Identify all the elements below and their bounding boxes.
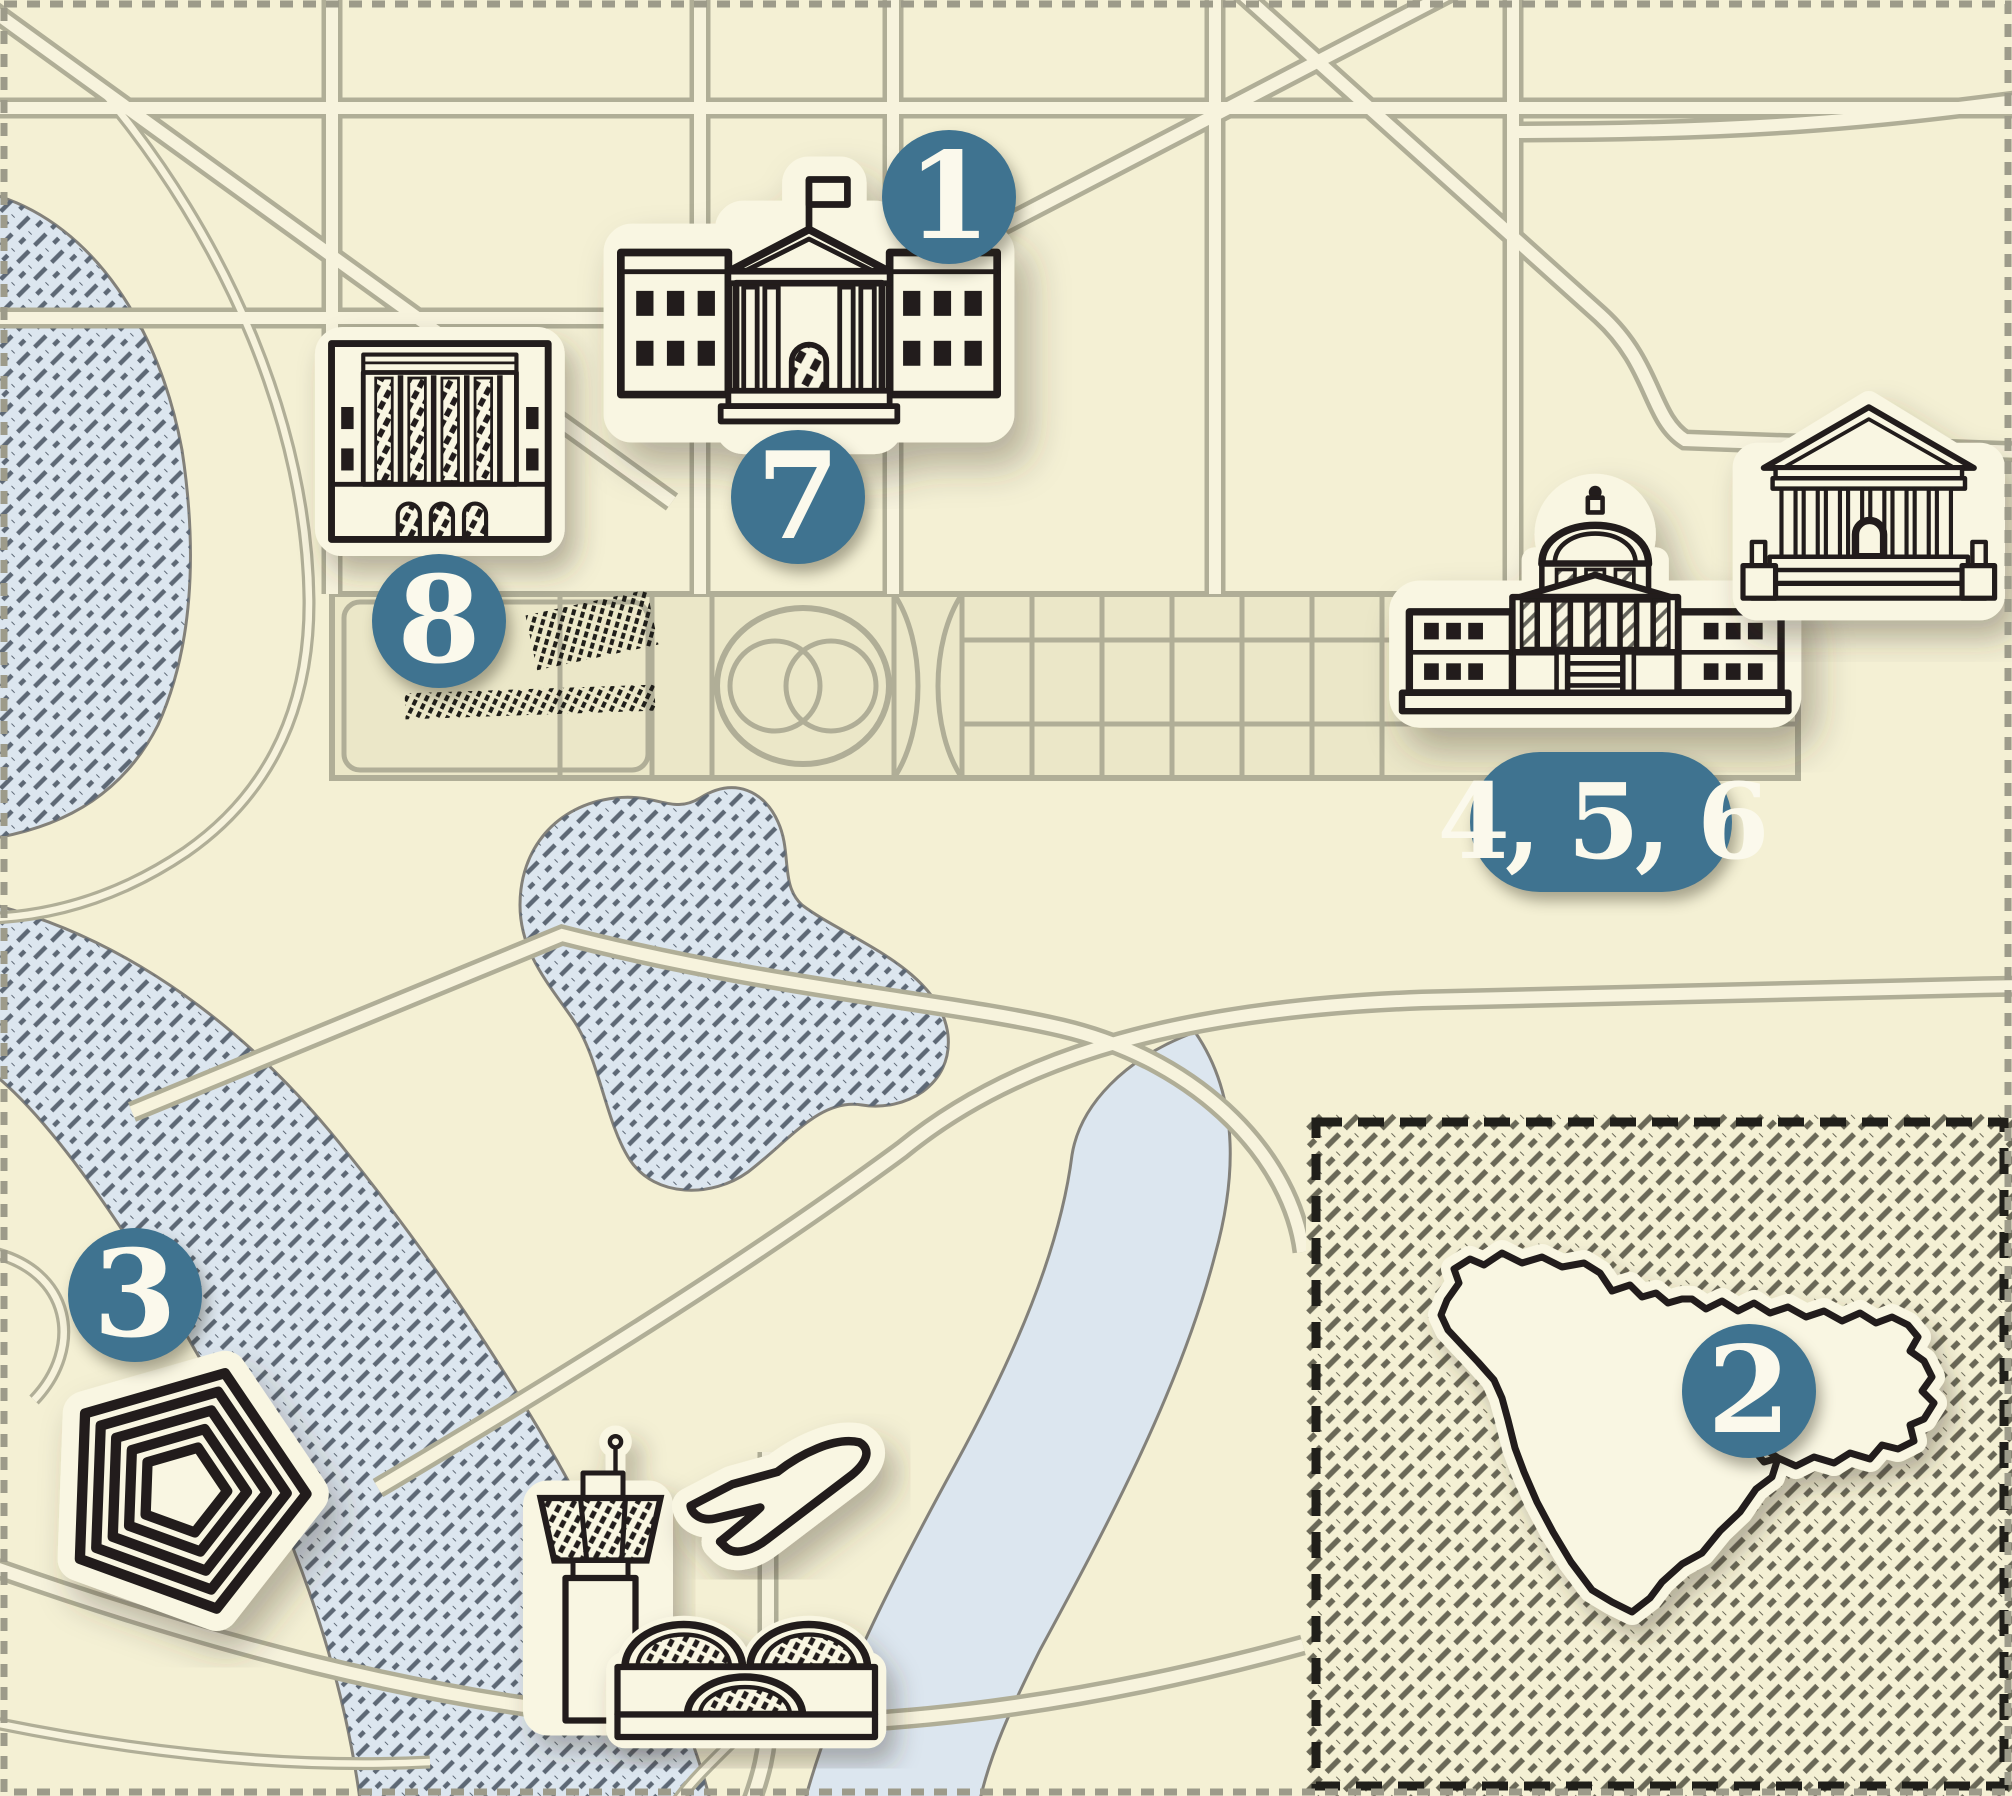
marker-3-label: 3	[93, 1235, 177, 1355]
marker-4-5-6: 4, 5, 6	[1470, 752, 1732, 892]
marker-1: 1	[882, 130, 1016, 264]
federal-building-icon	[326, 338, 554, 545]
marker-3: 3	[68, 1228, 202, 1362]
marker-2: 2	[1682, 1324, 1816, 1458]
illustrated-dc-map: 1 7 8 4, 5, 6 3 2	[0, 0, 2012, 1796]
marker-8: 8	[372, 554, 506, 688]
marker-8-label: 8	[397, 561, 481, 681]
map-canvas	[0, 0, 2012, 1796]
middle-east-inset	[1306, 1112, 2012, 1796]
marker-4-5-6-label: 4, 5, 6	[1438, 770, 1765, 874]
marker-7: 7	[731, 430, 865, 564]
marker-1-label: 1	[907, 137, 991, 257]
marker-2-label: 2	[1707, 1331, 1791, 1451]
pentagon-icon	[80, 1373, 307, 1608]
marker-7-label: 7	[756, 437, 840, 557]
